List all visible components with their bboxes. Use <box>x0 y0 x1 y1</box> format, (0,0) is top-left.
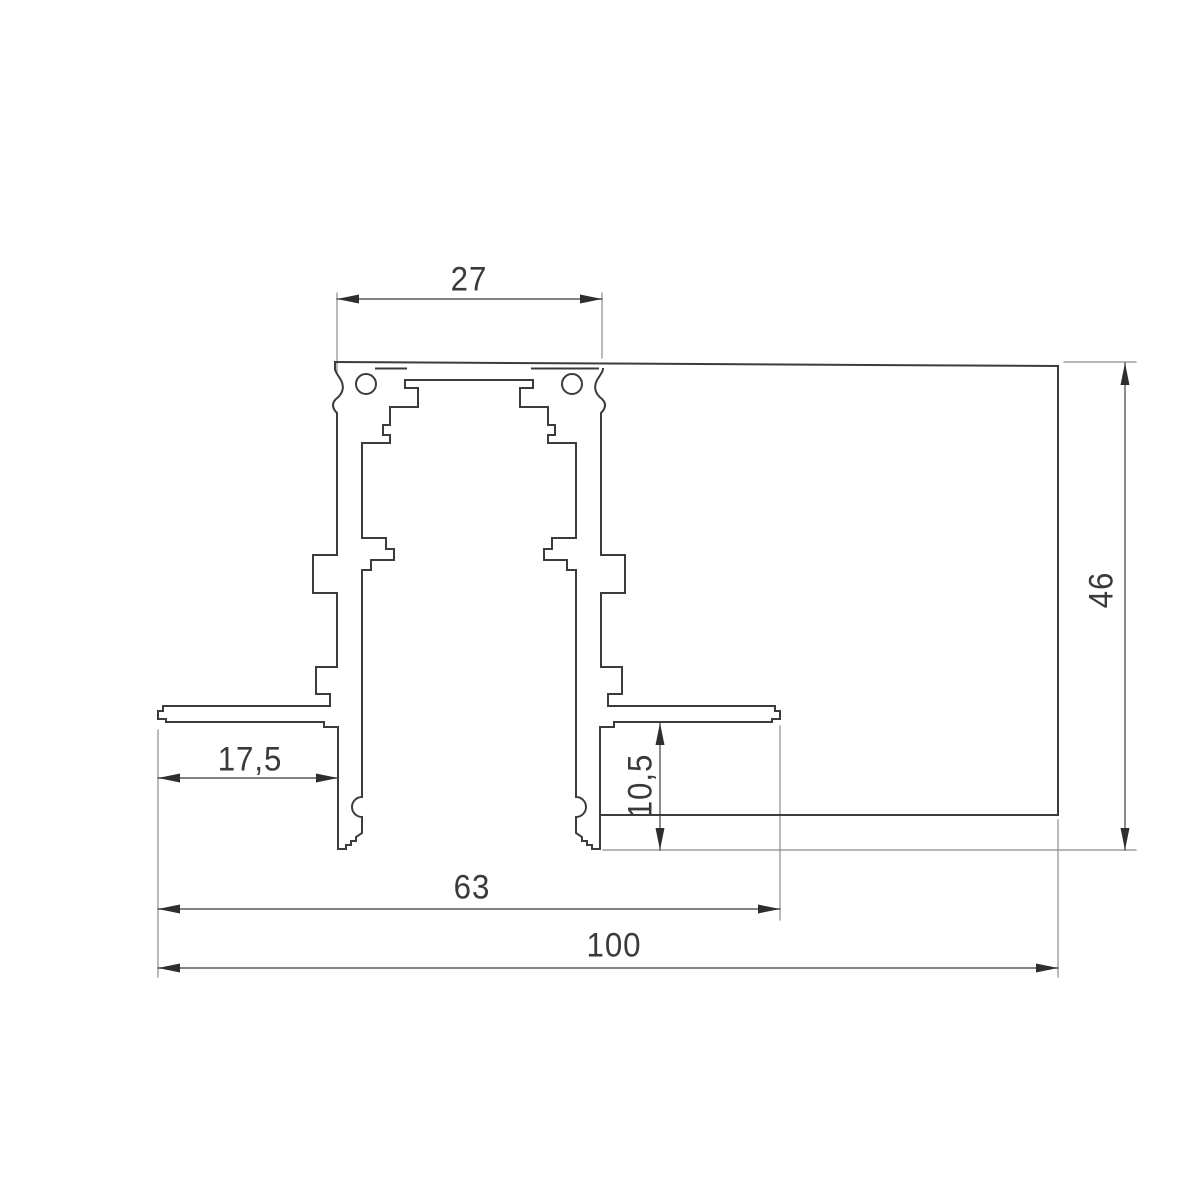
dimension-lines <box>158 299 1125 968</box>
arrow-27-left <box>337 295 359 304</box>
screw-channel-right-circle <box>562 374 582 394</box>
arrow-100-right <box>1036 964 1058 973</box>
arrow-10-5-bottom <box>656 828 665 850</box>
profile-drawing <box>0 0 1200 1200</box>
arrow-100-left <box>158 964 180 973</box>
profile-outline <box>158 362 1058 849</box>
arrow-46-top <box>1121 363 1130 385</box>
arrow-17-5-right <box>316 774 338 783</box>
dim-text-46: 46 <box>1083 572 1122 609</box>
arrow-10-5-top <box>656 723 665 745</box>
top-plate-top-edge <box>335 362 1058 366</box>
dim-text-100: 100 <box>587 927 642 966</box>
arrow-17-5-left <box>158 774 180 783</box>
dimension-arrows <box>158 295 1130 973</box>
profile-left-leg-outline <box>158 369 418 849</box>
arrow-46-bottom <box>1121 828 1130 850</box>
arrow-63-right <box>758 905 780 914</box>
drawing-canvas: 27 17,5 63 100 46 10,5 <box>0 0 1200 1200</box>
arrow-27-right <box>580 295 602 304</box>
dim-text-17-5: 17,5 <box>218 741 283 780</box>
dim-text-27: 27 <box>451 261 488 300</box>
screw-channel-left-circle <box>356 374 376 394</box>
arrow-63-left <box>158 905 180 914</box>
dim-text-63: 63 <box>454 869 491 908</box>
extension-lines <box>158 293 1136 977</box>
dim-text-10-5: 10,5 <box>622 754 661 819</box>
